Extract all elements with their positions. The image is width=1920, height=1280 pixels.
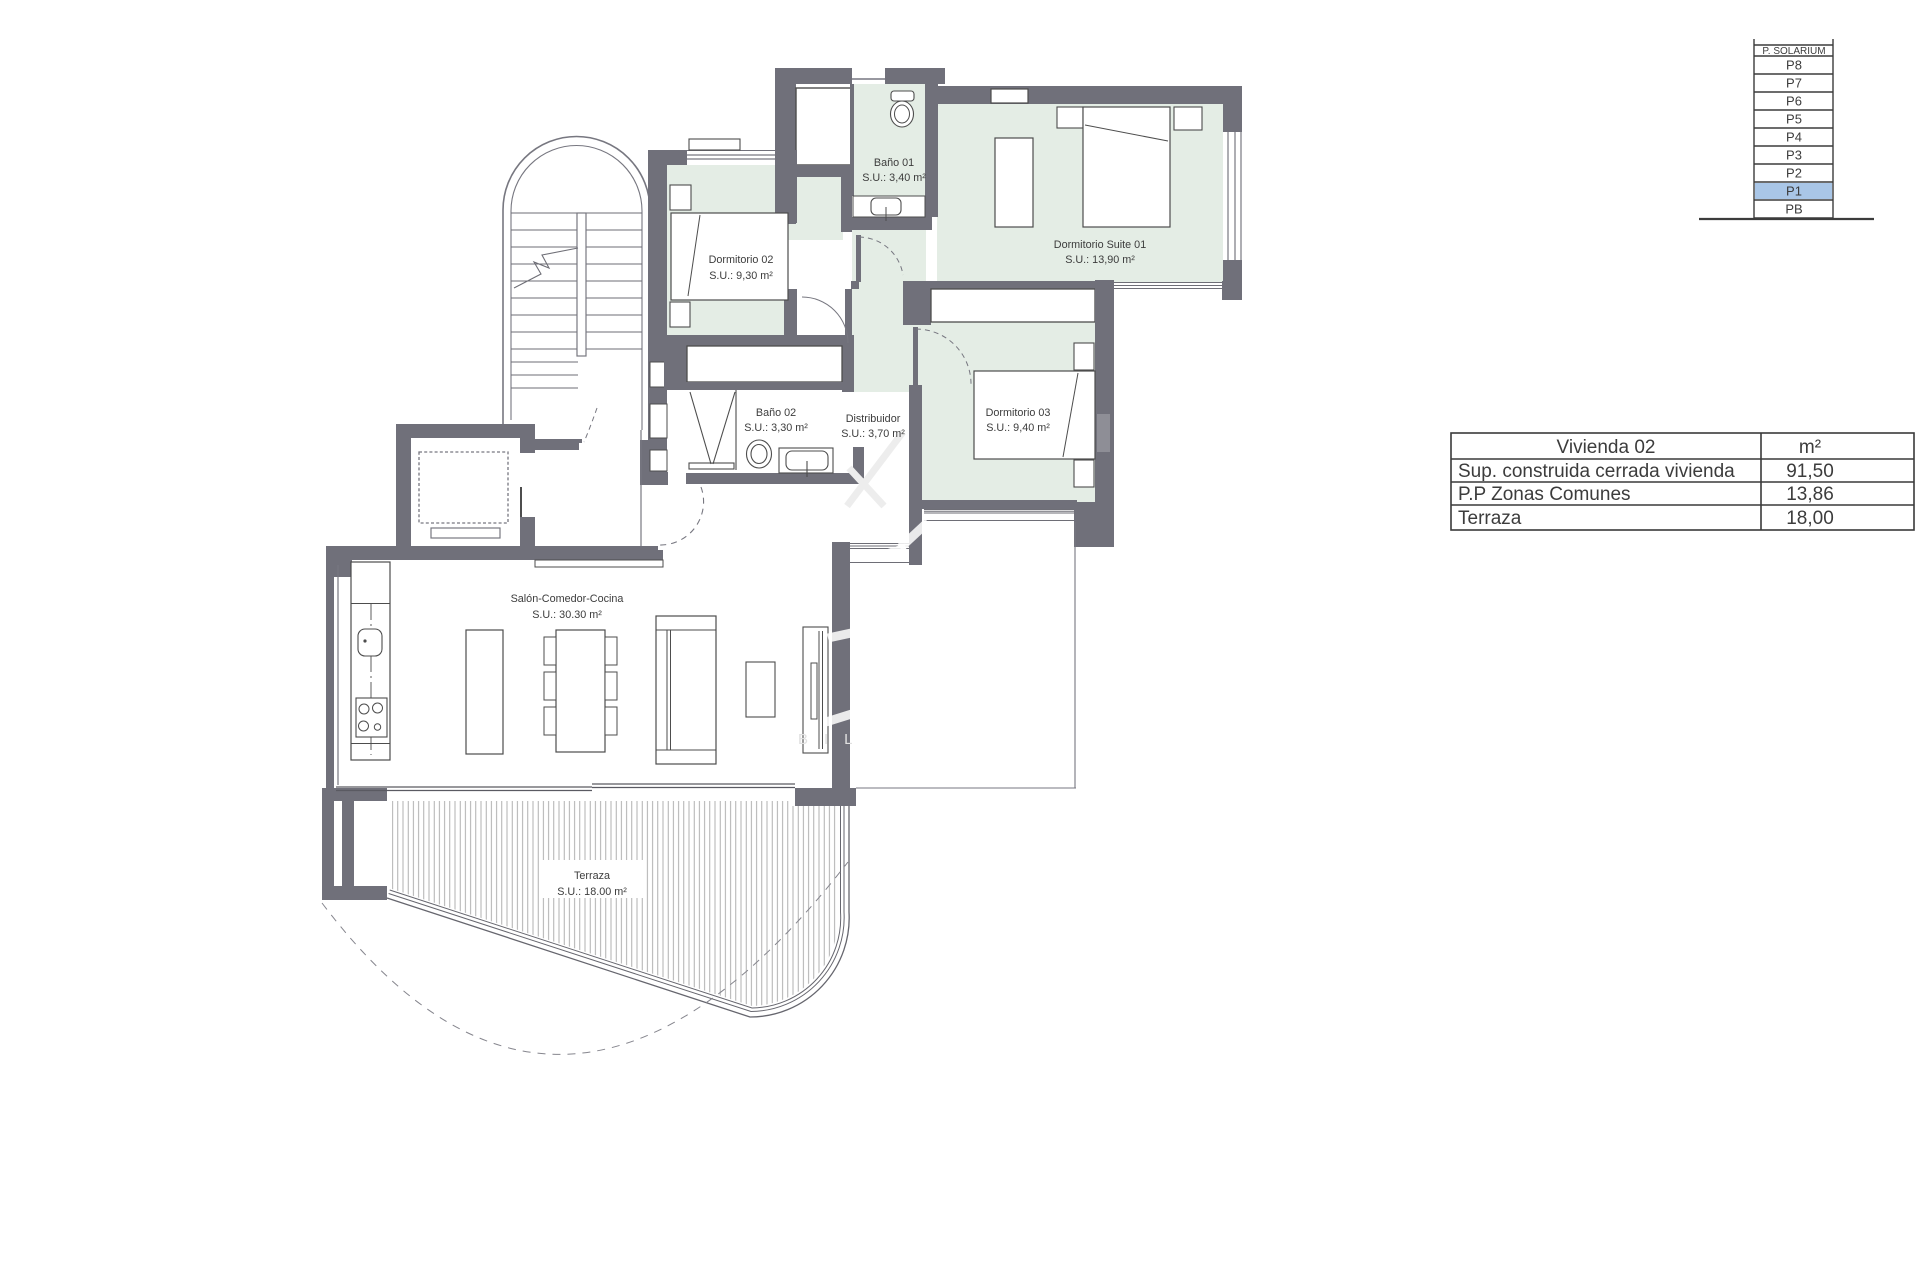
- svg-text:S.U.: 18.00 m²: S.U.: 18.00 m²: [557, 886, 627, 898]
- svg-text:Sup. construida cerrada vivien: Sup. construida cerrada vivienda: [1458, 461, 1735, 482]
- svg-text:S.U.: 3,70 m²: S.U.: 3,70 m²: [841, 428, 905, 440]
- svg-text:Baño 01: Baño 01: [874, 157, 914, 169]
- svg-text:S.U.: 3,30 m²: S.U.: 3,30 m²: [744, 422, 808, 434]
- svg-text:13,86: 13,86: [1786, 484, 1834, 505]
- svg-text:P7: P7: [1786, 76, 1802, 91]
- svg-text:91,50: 91,50: [1786, 461, 1834, 482]
- svg-text:P8: P8: [1786, 58, 1802, 73]
- svg-text:Baño 02: Baño 02: [756, 407, 796, 419]
- svg-text:P2: P2: [1786, 166, 1802, 181]
- svg-text:Terraza: Terraza: [1458, 508, 1522, 529]
- svg-text:S.U.: 9,40 m²: S.U.: 9,40 m²: [986, 422, 1050, 434]
- svg-text:Dormitorio 03: Dormitorio 03: [986, 407, 1051, 419]
- svg-text:S.U.: 30.30 m²: S.U.: 30.30 m²: [532, 609, 602, 621]
- svg-text:P6: P6: [1786, 94, 1802, 109]
- svg-text:Vivienda 02: Vivienda 02: [1557, 437, 1656, 458]
- svg-text:S.U.: 9,30 m²: S.U.: 9,30 m²: [709, 270, 773, 282]
- svg-text:m²: m²: [1799, 437, 1821, 458]
- svg-text:P.P Zonas Comunes: P.P Zonas Comunes: [1458, 484, 1631, 505]
- svg-text:Dormitorio Suite 01: Dormitorio Suite 01: [1054, 239, 1146, 251]
- svg-text:P. SOLARIUM: P. SOLARIUM: [1762, 46, 1825, 57]
- svg-text:PB: PB: [1785, 202, 1802, 217]
- svg-text:Terraza: Terraza: [574, 870, 610, 882]
- svg-text:P4: P4: [1786, 130, 1802, 145]
- svg-text:S.U.: 3,40 m²: S.U.: 3,40 m²: [862, 172, 926, 184]
- svg-text:P5: P5: [1786, 112, 1802, 127]
- svg-text:18,00: 18,00: [1786, 508, 1834, 529]
- svg-text:P1: P1: [1786, 184, 1802, 199]
- svg-text:S.U.: 13,90 m²: S.U.: 13,90 m²: [1065, 254, 1135, 266]
- svg-text:Distribuidor: Distribuidor: [846, 413, 901, 425]
- svg-text:Dormitorio 02: Dormitorio 02: [709, 254, 774, 266]
- svg-text:BIL: BIL: [798, 731, 869, 748]
- svg-text:P3: P3: [1786, 148, 1802, 163]
- svg-text:Salón-Comedor-Cocina: Salón-Comedor-Cocina: [511, 593, 624, 605]
